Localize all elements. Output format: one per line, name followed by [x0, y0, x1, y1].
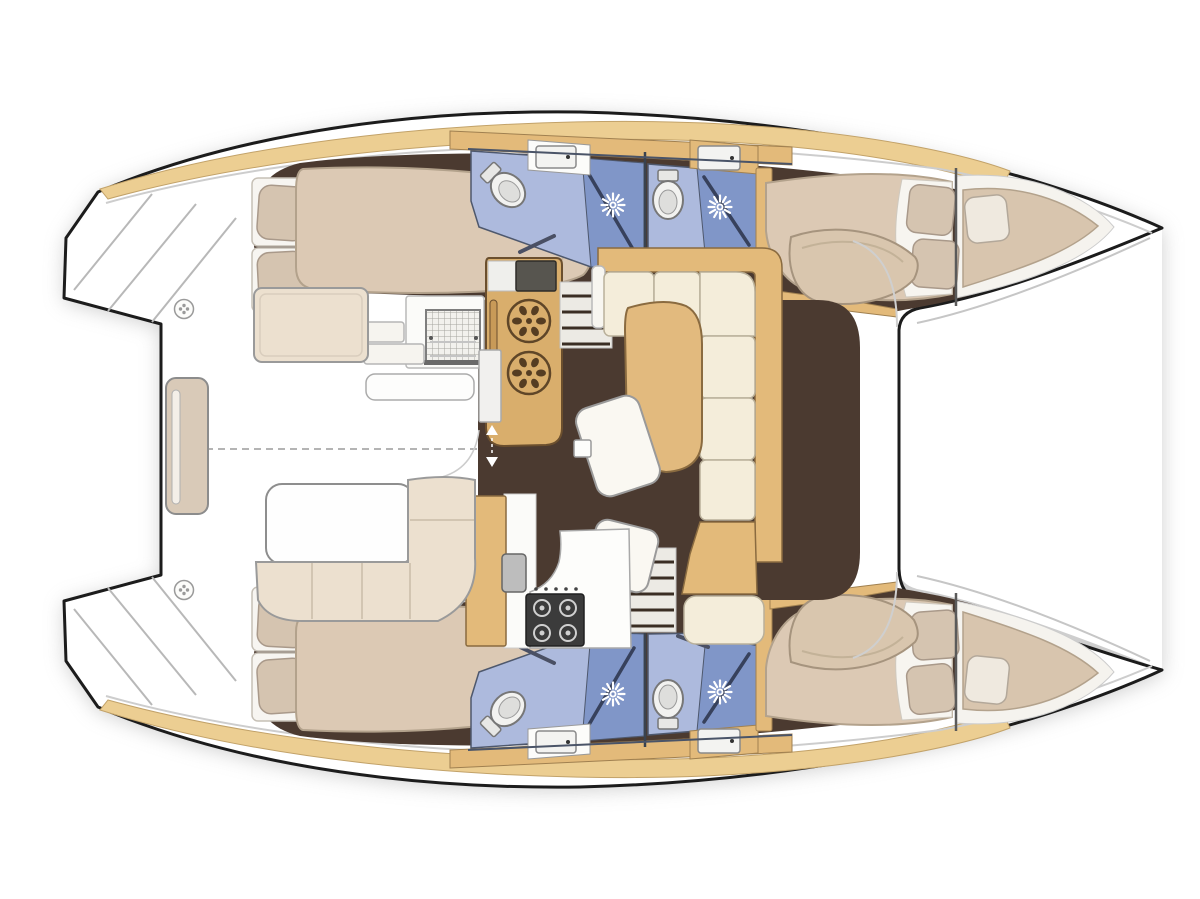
cockpit-table	[266, 484, 414, 564]
mesh-pin	[429, 336, 433, 340]
cockpit-side-bench	[254, 288, 368, 362]
round-burner-icon	[508, 352, 550, 394]
shelf	[364, 344, 424, 364]
mesh-pin	[474, 336, 478, 340]
sofa-cushion	[700, 460, 755, 520]
counter-top-white	[488, 261, 516, 291]
floor-plan-canvas	[0, 0, 1200, 899]
appliance-box	[502, 554, 526, 592]
cockpit-white-bench	[366, 374, 474, 400]
shelf	[364, 322, 404, 342]
round-burner-icon	[508, 300, 550, 342]
table-leg	[574, 440, 591, 457]
mesh-bottom-bar	[424, 360, 482, 365]
galley-sink	[516, 261, 556, 291]
sofa-cushion	[700, 398, 755, 460]
sofa-end-seat	[684, 596, 764, 644]
sofa-cushion	[700, 336, 755, 398]
transom-bench-slot	[172, 390, 180, 504]
sliding-door	[479, 350, 501, 422]
catamaran-floor-plan	[0, 0, 1200, 899]
sofa-corner-cushion	[700, 272, 755, 336]
sofa-armrest	[592, 266, 605, 328]
